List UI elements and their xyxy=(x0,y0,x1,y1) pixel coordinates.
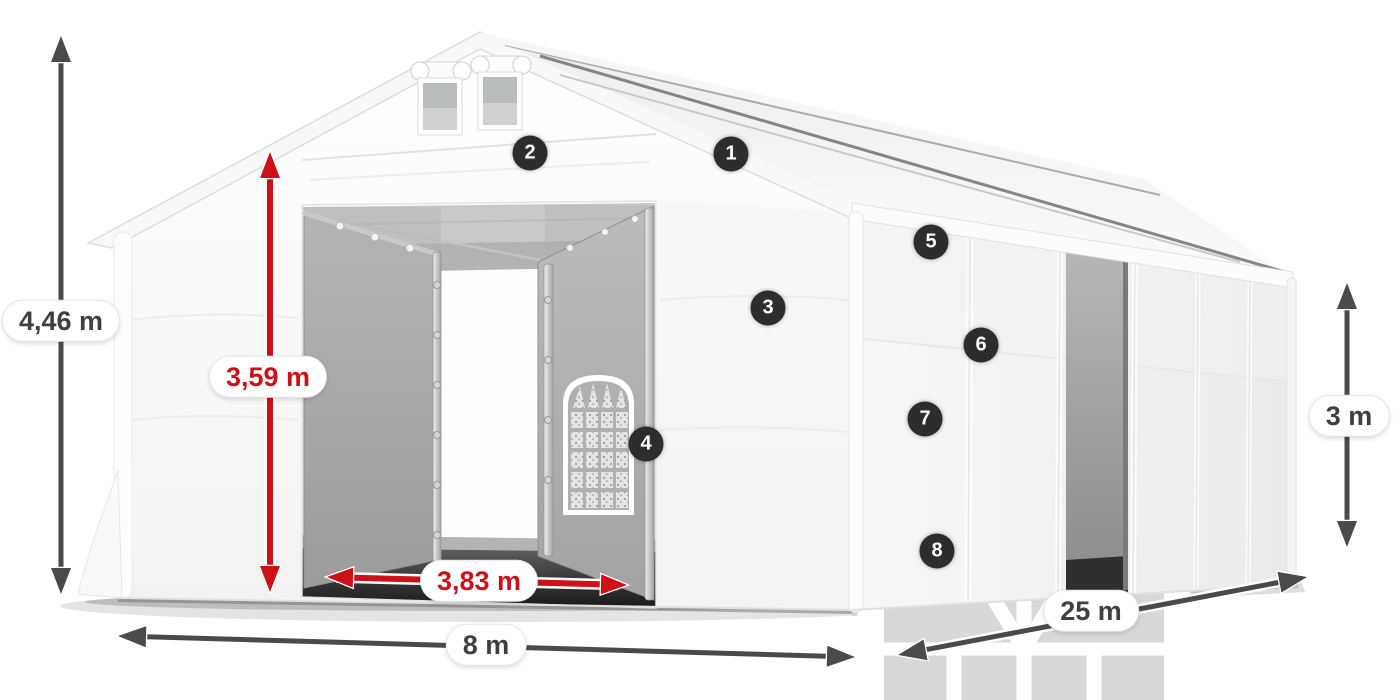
dim-front-width-label: 8 m xyxy=(447,625,526,665)
marker-3[interactable]: 3 xyxy=(751,291,786,326)
side-doorway xyxy=(1066,240,1128,598)
dim-side-height-label: 3 m xyxy=(1310,396,1389,436)
product-dimension-diagram: 4,46 m 3,59 m 3,83 m 8 m 25 m 3 m 1 2 3 … xyxy=(0,0,1400,700)
marker-2[interactable]: 2 xyxy=(513,136,548,171)
dim-entrance-height-label: 3,59 m xyxy=(210,357,326,397)
marker-5[interactable]: 5 xyxy=(914,225,949,260)
marker-4[interactable]: 4 xyxy=(629,427,664,462)
dim-total-height-label: 4,46 m xyxy=(3,301,119,341)
gable-vent-left xyxy=(411,62,471,135)
marker-1[interactable]: 1 xyxy=(714,137,749,172)
marker-7[interactable]: 7 xyxy=(908,402,943,437)
marker-8[interactable]: 8 xyxy=(920,534,955,569)
marker-6[interactable]: 6 xyxy=(964,328,999,363)
dim-side-length-label: 25 m xyxy=(1044,591,1138,631)
entrance-right-door xyxy=(538,206,654,600)
gable-vent-right xyxy=(471,56,531,130)
tent-illustration xyxy=(0,0,1400,700)
dim-entrance-width-label: 3,83 m xyxy=(421,561,537,601)
